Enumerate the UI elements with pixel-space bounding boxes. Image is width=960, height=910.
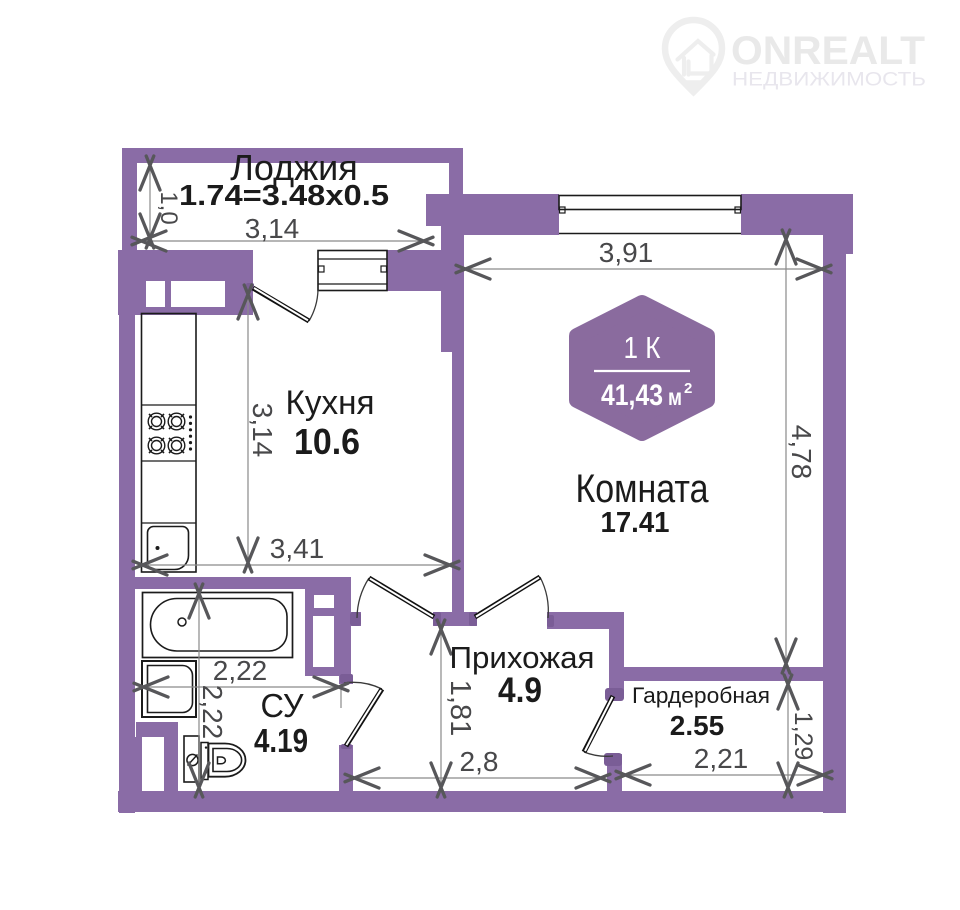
svg-text:3,91: 3,91 [599,237,654,268]
svg-text:2: 2 [684,380,692,397]
svg-text:Кухня: Кухня [286,384,375,422]
svg-text:3,14: 3,14 [245,213,300,244]
svg-text:м: м [668,384,682,410]
svg-text:2,8: 2,8 [460,746,499,777]
svg-text:Прихожая: Прихожая [450,640,595,675]
svg-text:4.19: 4.19 [254,722,308,759]
svg-text:4.9: 4.9 [498,671,542,710]
svg-text:3,14: 3,14 [247,403,278,458]
svg-text:НЕДВИЖИМОСТЬ: НЕДВИЖИМОСТЬ [732,70,926,91]
svg-text:1.74=3.48x0.5: 1.74=3.48x0.5 [179,180,389,212]
svg-text:1,0: 1,0 [155,191,182,224]
svg-text:41,43: 41,43 [601,379,663,412]
svg-text:10.6: 10.6 [294,421,360,462]
svg-text:Гардеробная: Гардеробная [632,683,770,708]
svg-text:2,22: 2,22 [197,685,228,740]
svg-text:ONREALT: ONREALT [731,29,925,73]
svg-text:2,21: 2,21 [694,743,749,774]
svg-text:1,81: 1,81 [444,680,476,736]
svg-text:1,29: 1,29 [789,712,817,761]
svg-text:2,22: 2,22 [213,655,268,686]
svg-text:1 К: 1 К [624,330,661,365]
svg-text:СУ: СУ [261,687,305,724]
svg-text:2.55: 2.55 [670,710,725,741]
svg-text:3,41: 3,41 [270,533,325,564]
svg-text:4,78: 4,78 [786,425,817,480]
svg-text:17.41: 17.41 [601,507,670,539]
svg-text:Комната: Комната [576,467,710,511]
